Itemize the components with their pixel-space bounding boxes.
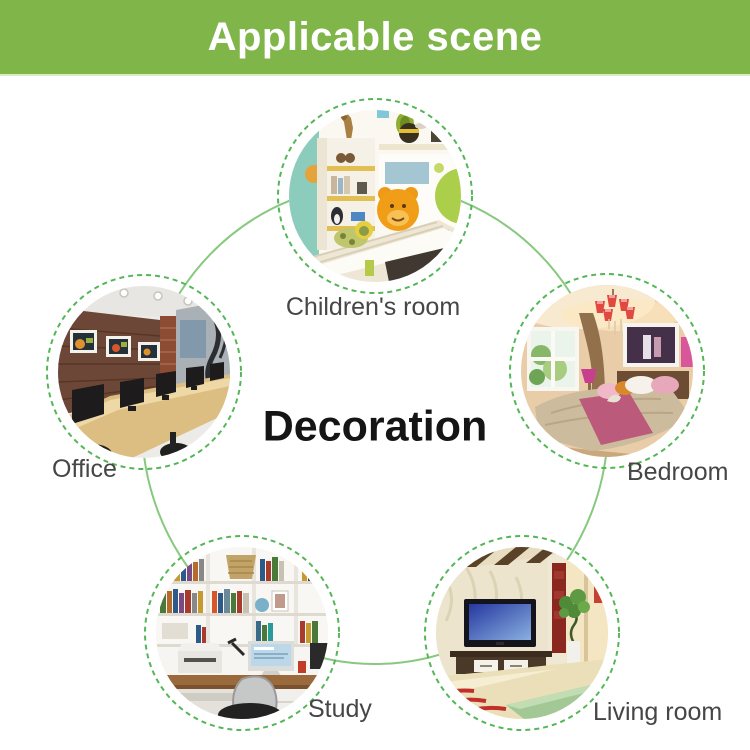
study-photo <box>156 547 328 719</box>
office-photo <box>58 286 230 458</box>
study-label: Study <box>308 695 372 724</box>
living-room-photo <box>436 547 608 719</box>
living-room-label: Living room <box>593 698 722 727</box>
office-label: Office <box>52 455 117 484</box>
study-illustration <box>156 547 328 719</box>
childrens-room-photo <box>289 110 461 282</box>
childrens-room-label: Children's room <box>286 293 460 322</box>
living-room-illustration <box>436 547 608 719</box>
center-title: Decoration <box>263 403 488 452</box>
bedroom-illustration <box>521 285 693 457</box>
office-illustration <box>58 286 230 458</box>
childrens-room-illustration <box>289 110 461 282</box>
bedroom-photo <box>521 285 693 457</box>
page: Applicable scene <box>0 0 750 750</box>
bedroom-label: Bedroom <box>627 458 728 487</box>
